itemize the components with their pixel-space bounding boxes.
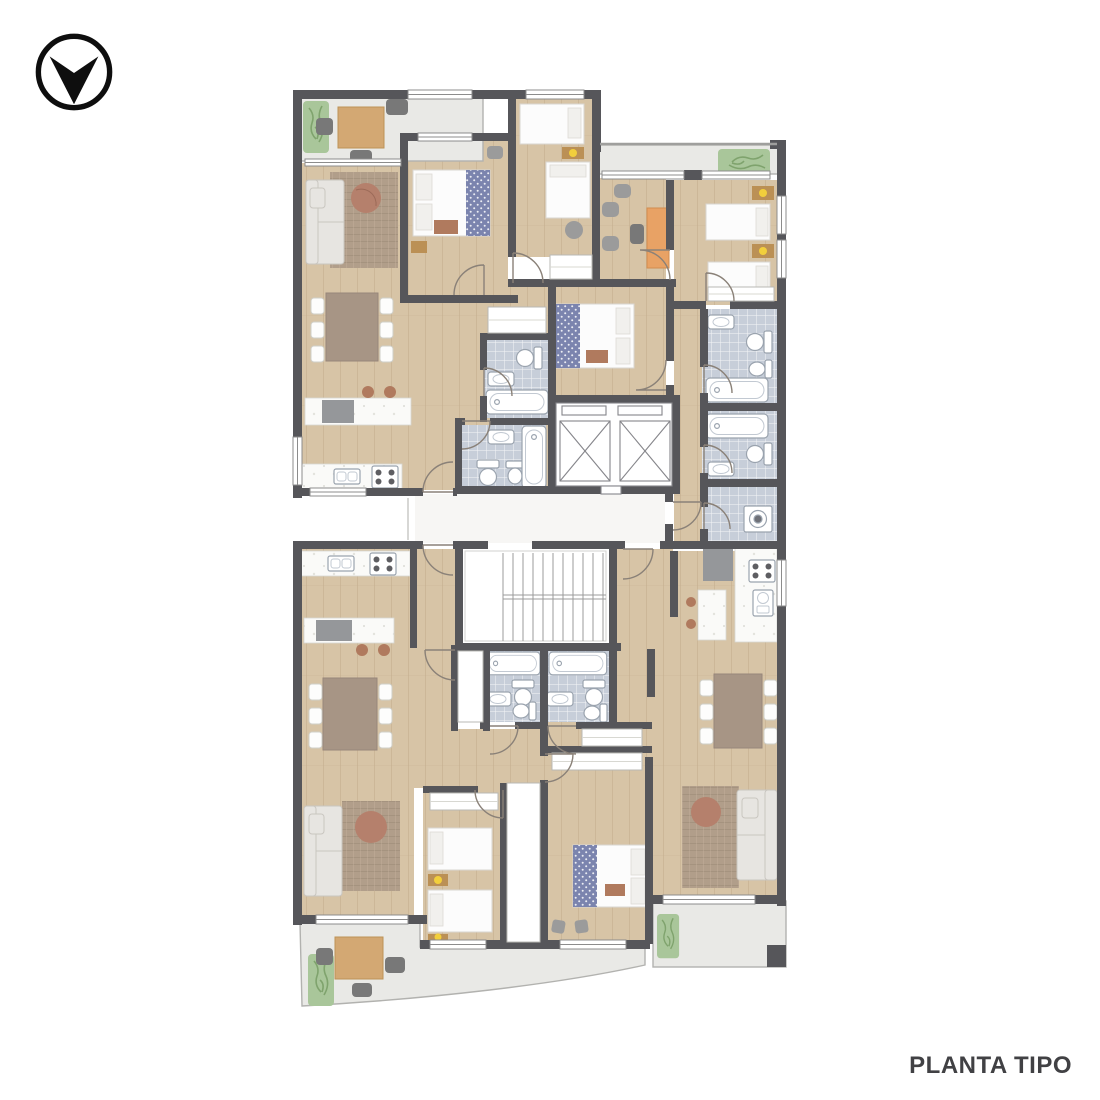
sink-icon — [488, 430, 514, 444]
stool — [362, 386, 374, 398]
bathtub-icon — [522, 426, 546, 488]
nightstand — [411, 241, 427, 253]
terrace-chair — [316, 118, 333, 135]
bidet-icon — [506, 461, 524, 484]
entrance-hall-floor — [415, 494, 665, 543]
wardrobe — [430, 793, 498, 810]
bathtub-icon — [706, 414, 768, 438]
floor-plan-svg — [0, 0, 1100, 1100]
bathtub-icon — [706, 378, 768, 402]
living-room-se — [682, 786, 777, 888]
stool — [356, 644, 368, 656]
toilet-icon — [477, 460, 499, 486]
closet — [582, 729, 642, 746]
desk-chair — [630, 224, 644, 244]
kitchen-island — [305, 398, 411, 425]
bedroom-center — [556, 304, 634, 368]
light-well — [458, 651, 483, 722]
dining-se — [700, 674, 777, 748]
plan-title: PLANTA TIPO — [909, 1052, 1072, 1080]
elevator-door-mark — [618, 406, 662, 415]
wardrobe — [708, 287, 774, 301]
plant-icon — [657, 914, 679, 958]
fridge — [703, 547, 733, 581]
bidet-icon — [584, 704, 607, 722]
stool — [384, 386, 396, 398]
sofa-icon — [737, 790, 777, 880]
dining-sw — [309, 678, 392, 750]
toilet-icon — [747, 443, 773, 465]
elevator-door-mark — [562, 406, 606, 415]
terrace-table — [338, 107, 384, 148]
light-well — [507, 783, 540, 942]
wardrobe — [552, 753, 642, 770]
toilet-icon — [747, 331, 773, 353]
stove-icon — [749, 560, 775, 582]
stool — [378, 644, 390, 656]
bathtub-icon — [549, 652, 607, 675]
stove-icon — [372, 466, 398, 488]
pouf — [574, 919, 589, 934]
bathtub-icon — [486, 390, 548, 414]
toilet-icon — [583, 680, 605, 706]
sofa-icon — [306, 180, 344, 264]
closet — [488, 307, 546, 333]
living-room-sw — [304, 801, 400, 896]
closet — [550, 255, 592, 279]
round-rug — [351, 183, 381, 213]
kitchen-island — [698, 590, 726, 640]
stove-icon — [370, 553, 396, 575]
desk — [647, 208, 669, 268]
sink-icon — [547, 692, 573, 706]
round-rug — [691, 797, 721, 827]
stool — [686, 619, 696, 629]
dining-table — [326, 293, 378, 361]
elevators — [556, 403, 672, 494]
terrace-table — [335, 937, 383, 979]
terrace-chair — [386, 99, 408, 115]
chair — [487, 146, 503, 159]
bidet-icon — [513, 702, 536, 720]
dining-table — [323, 678, 377, 750]
lamp-icon — [569, 149, 577, 157]
bathtub-icon — [486, 652, 540, 675]
dining-table — [714, 674, 762, 748]
washing-machine-icon — [744, 506, 772, 532]
pouf — [551, 919, 566, 934]
floor-plan-page: PLANTA TIPO — [0, 0, 1100, 1100]
pouf — [565, 221, 583, 239]
stool — [686, 597, 696, 607]
toilet-icon — [517, 347, 543, 369]
kitchen-sink-icon — [328, 556, 354, 571]
staircase — [463, 549, 609, 643]
kitchen-sink-icon — [334, 469, 360, 484]
bidet-icon — [749, 360, 772, 378]
kitchen-sink-icon — [753, 590, 773, 616]
sink-icon — [708, 315, 734, 329]
round-rug — [355, 811, 387, 843]
sofa-icon — [304, 806, 342, 896]
elevator-lobby-door — [601, 486, 621, 494]
laundry-room — [744, 506, 772, 532]
